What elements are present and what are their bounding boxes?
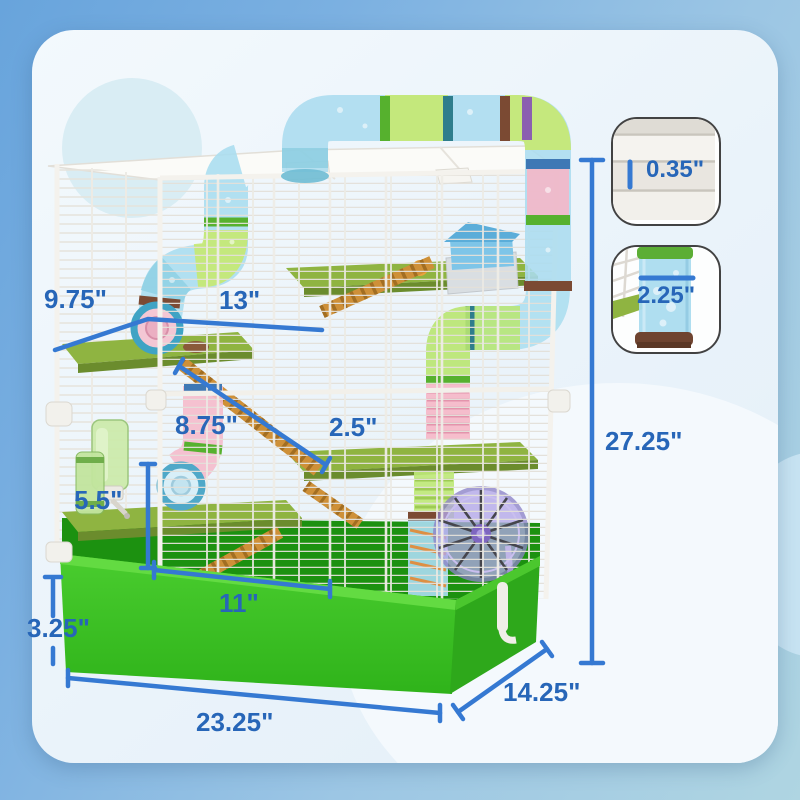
label-door-width: 11"	[219, 590, 259, 616]
label-level-height: 5.5"	[74, 487, 122, 513]
label-overall-height: 27.25"	[605, 428, 682, 454]
product-dimension-diagram: 9.75" 13" 8.75" 2.5" 5.5" 11" 3.25" 23.2…	[0, 0, 800, 800]
label-top-width: 13"	[219, 287, 260, 313]
card-circle-decoration-top-left	[62, 78, 202, 218]
label-overall-depth: 14.25"	[503, 679, 580, 705]
label-top-depth: 9.75"	[44, 286, 107, 312]
label-ramp-length: 8.75"	[175, 412, 238, 438]
callout-tube-diameter: 2.25"	[611, 245, 721, 354]
label-shelf-gap: 2.5"	[329, 414, 377, 440]
callout-wire-spacing: 0.35"	[611, 117, 721, 226]
label-wire-spacing: 0.35"	[646, 158, 704, 182]
label-tube-diameter: 2.25"	[637, 284, 695, 308]
label-base-depth: 3.25"	[27, 615, 90, 641]
label-overall-width: 23.25"	[196, 709, 273, 735]
